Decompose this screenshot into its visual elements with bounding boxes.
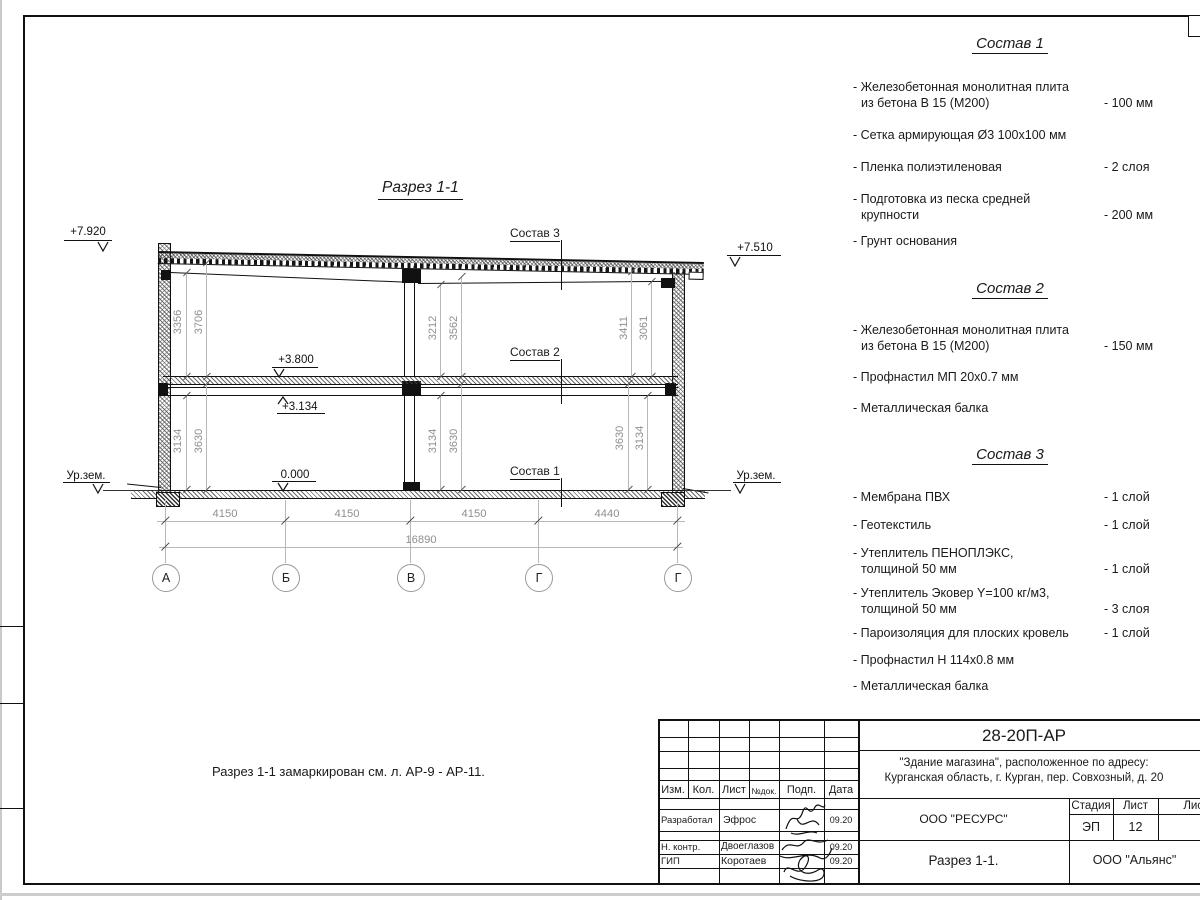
col-header-data: Дата [824,784,858,796]
spec-item: - Железобетонная монолитная плита из бет… [853,322,1200,354]
axis-bubble-b: Б [272,564,300,592]
signature-1 [783,799,827,837]
spec-item: - Утеплитель ПЕНОПЛЭКС, толщиной 50 мм -… [853,545,1200,577]
level-roof-right: +7.510 [731,242,779,254]
level-floor1: 0.000 [274,469,316,481]
dim-line-total [159,547,683,548]
dim-line [461,277,462,376]
titleblock-line [658,751,859,752]
level-beam2: +3.134 [282,401,318,413]
margin-box-line [0,703,24,704]
org-contractor: ООО "Альянс" [1069,853,1200,867]
dim-line [206,384,207,489]
titleblock-line [1069,814,1200,815]
level-roof-left: +7.920 [64,226,112,238]
spec-item: - Геотекстиль- 1 слой [853,517,1200,533]
drawing-note: Разрез 1-1 замаркирован см. л. АР-9 - АР… [212,764,485,779]
spec-section-3: Состав 3 - Мембрана ПВХ- 1 слой - Геотек… [852,447,1200,697]
spec-item: - Профнастил МП 20x0.7 мм [853,369,1200,385]
level-arrow-down-icon [729,256,742,267]
spec-section-1: Состав 1 - Железобетонная монолитная пли… [852,36,1200,276]
spec-item: - Пароизоляция для плоских кровель- 1 сл… [853,625,1200,641]
dim-value: 4150 [452,508,496,520]
name-1: Эфрос [723,814,756,826]
callout-sostav-3: Состав 3 [510,226,560,242]
margin-box-line [0,808,24,809]
dim-line [628,384,629,489]
dim-value: 4440 [585,508,629,520]
dim-value: 3562 [448,306,460,350]
col-header-ndoc: №док. [749,786,779,796]
spec-title: Состав 1 [852,36,1168,52]
spec-title: Состав 3 [852,447,1168,463]
page-edge-left [0,0,2,900]
titleblock-line [658,780,859,781]
ground-line-left [103,490,159,491]
level-floor2: +3.800 [274,354,318,366]
apron-left [127,483,161,488]
org-customer: ООО "РЕСУРС" [858,812,1069,826]
extension-line [285,500,286,563]
section-view-title: Разрез 1-1 [378,179,463,200]
sheet-caption: Разрез 1-1. [858,853,1069,868]
callout-leader [561,359,562,404]
dim-value-total: 16890 [399,534,443,546]
extension-line [538,500,539,563]
dim-value: 3134 [634,416,646,460]
dim-line [631,272,632,376]
level-arrow-down-icon [92,483,105,494]
spec-item: - Грунт основания [853,233,1200,249]
axis-bubble-a: А [152,564,180,592]
doc-code: 28-20П-АР [858,726,1190,746]
titleblock-line [658,719,1200,721]
stage-label: Стадия [1069,800,1113,812]
dim-value: 3356 [172,300,184,344]
titleblock-line [658,809,859,810]
dim-line [440,285,441,376]
sheet-number: 12 [1113,820,1158,834]
beam-support [402,269,421,283]
dim-line [186,396,187,489]
object-address-line2: Курганская область, г. Курган, пер. Совх… [858,772,1190,784]
callout-sostav-1: Состав 1 [510,464,560,480]
dim-value: 3212 [427,306,439,350]
titleblock-line [658,719,660,884]
spec-item: - Сетка армирующая Ø3 100x100 мм [853,127,1200,143]
role-3: ГИП [661,856,680,867]
dim-value: 4150 [325,508,369,520]
footing-right [661,492,685,507]
dim-value: 3630 [614,416,626,460]
level-arrow-down-icon [277,482,290,492]
col-header-podp: Подп. [779,784,824,796]
ground-level-label-left: Ур.зем. [63,470,109,482]
spec-section-2: Состав 2 - Железобетонная монолитная пли… [852,281,1200,421]
signature-2 [776,836,834,882]
beam-support [161,270,171,280]
col-header-izm: Изм. [658,784,688,796]
frame-bottom [23,883,1200,885]
dim-line [461,384,462,489]
col-header-kol: Кол. [688,784,719,796]
dim-line [651,282,652,376]
dim-value: 3134 [427,419,439,463]
level-arrow-down-icon [734,483,747,494]
dim-line [206,263,207,376]
extension-line [165,500,166,563]
dim-line [186,273,187,376]
spec-item: - Подготовка из песка средней крупности … [853,191,1200,223]
date-1: 09.20 [824,815,858,825]
axis-bubble-g1: Г [525,564,553,592]
titleblock-line [658,737,859,738]
col-header-list: Лист [719,784,749,796]
dim-value: 3411 [618,306,630,350]
dim-line-bottom [157,521,685,522]
titleblock-line [658,831,859,832]
spec-item: - Мембрана ПВХ- 1 слой [853,489,1200,505]
dim-line [440,396,441,489]
callout-leader [561,478,562,507]
dim-line [647,396,648,489]
beam-support [661,278,675,288]
level-arrow-down-icon [97,241,110,252]
name-3: Коротаев [721,855,766,867]
margin-box-line [0,626,24,627]
ground-line-right [684,490,731,491]
frame-top [23,15,1200,17]
role-2: Н. контр. [661,842,700,853]
spec-item: - Пленка полиэтиленовая- 2 слоя [853,159,1200,175]
name-2: Двоеглазов [721,841,774,852]
page-edge-bottom [0,893,1200,896]
spec-item: - Железобетонная монолитная плита из бет… [853,79,1200,111]
callout-leader [561,240,562,290]
spec-item: - Металлическая балка [853,400,1200,416]
dim-value: 3061 [638,306,650,350]
column-lower [404,396,415,483]
titleblock-line [858,750,1200,751]
roof-end-cap [689,271,704,280]
ground-level-label-right: Ур.зем. [733,470,779,482]
titleblock-line [658,798,1200,799]
dim-value: 4150 [203,508,247,520]
dim-value: 3706 [193,300,205,344]
level-arrow-down-icon [273,368,286,378]
dim-value: 3630 [448,419,460,463]
column-upper [404,283,415,377]
left-wall [158,243,171,498]
axis-bubble-v: В [397,564,425,592]
spec-item: - Металлическая балка [853,678,1200,694]
axis-bubble-g2: Г [664,564,692,592]
sheet-label: Лист [1113,800,1158,812]
level-shelf [277,413,325,414]
drawing-sheet: { "drawing": { "title": "Разрез 1-1", "n… [0,0,1200,900]
sheets-label: Листов [1158,800,1200,812]
spec-item: - Профнастил Н 114x0.8 мм [853,652,1200,668]
titleblock-line [719,719,720,884]
floor1-slab [131,490,705,499]
floor2-beam-bottom [163,395,678,397]
spec-item: - Утеплитель Эковер Y=100 кг/м3, толщино… [853,585,1200,617]
dim-value: 3134 [172,419,184,463]
spec-title: Состав 2 [852,281,1168,297]
extension-line [677,500,678,563]
callout-sostav-2: Состав 2 [510,345,560,361]
extension-line [410,500,411,563]
object-address-line1: "Здание магазина", расположенное по адре… [858,757,1190,769]
frame-left [23,15,25,884]
role-1: Разработал [661,815,713,826]
stage-value: ЭП [1069,820,1113,834]
frame-corner-box [1188,15,1200,37]
floor2-slab [163,376,678,385]
footing-left [156,492,180,507]
floor2-beam-top [163,387,678,388]
dim-value: 3630 [193,419,205,463]
titleblock-line [658,768,859,769]
